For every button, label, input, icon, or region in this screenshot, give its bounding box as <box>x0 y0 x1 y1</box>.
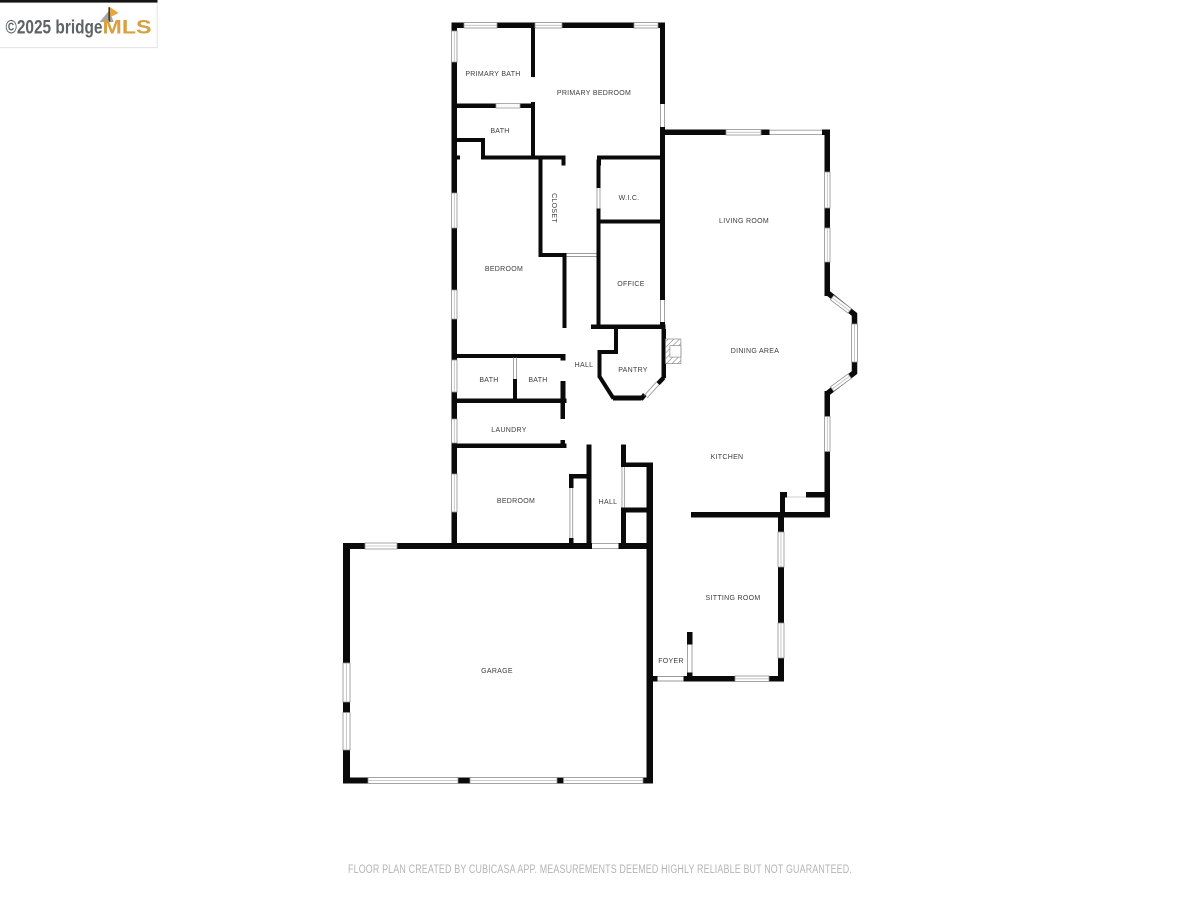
svg-text:BEDROOM: BEDROOM <box>485 266 523 273</box>
svg-text:PRIMARY BEDROOM: PRIMARY BEDROOM <box>557 90 631 97</box>
svg-text:BATH: BATH <box>490 128 509 135</box>
svg-text:OFFICE: OFFICE <box>617 281 644 288</box>
svg-text:LIVING ROOM: LIVING ROOM <box>719 218 769 225</box>
svg-text:W.I.C.: W.I.C. <box>619 195 640 202</box>
svg-text:©2025 bridgeMLS: ©2025 bridgeMLS <box>6 17 152 39</box>
svg-text:KITCHEN: KITCHEN <box>711 454 744 461</box>
svg-text:PRIMARY BATH: PRIMARY BATH <box>465 71 520 78</box>
svg-text:BATH: BATH <box>528 377 547 384</box>
svg-text:BEDROOM: BEDROOM <box>497 498 535 505</box>
svg-text:SITTING ROOM: SITTING ROOM <box>706 595 761 602</box>
svg-text:GARAGE: GARAGE <box>481 668 513 675</box>
svg-text:CLOSET: CLOSET <box>550 193 557 223</box>
svg-text:BATH: BATH <box>479 377 498 384</box>
svg-text:HALL: HALL <box>599 499 618 506</box>
svg-text:FLOOR PLAN CREATED BY CUBICASA: FLOOR PLAN CREATED BY CUBICASA APP. MEAS… <box>348 864 852 876</box>
svg-text:LAUNDRY: LAUNDRY <box>491 427 526 434</box>
svg-text:PANTRY: PANTRY <box>618 367 648 374</box>
svg-text:DINING AREA: DINING AREA <box>731 348 779 355</box>
svg-text:FOYER: FOYER <box>658 658 684 665</box>
svg-text:HALL: HALL <box>575 362 594 369</box>
